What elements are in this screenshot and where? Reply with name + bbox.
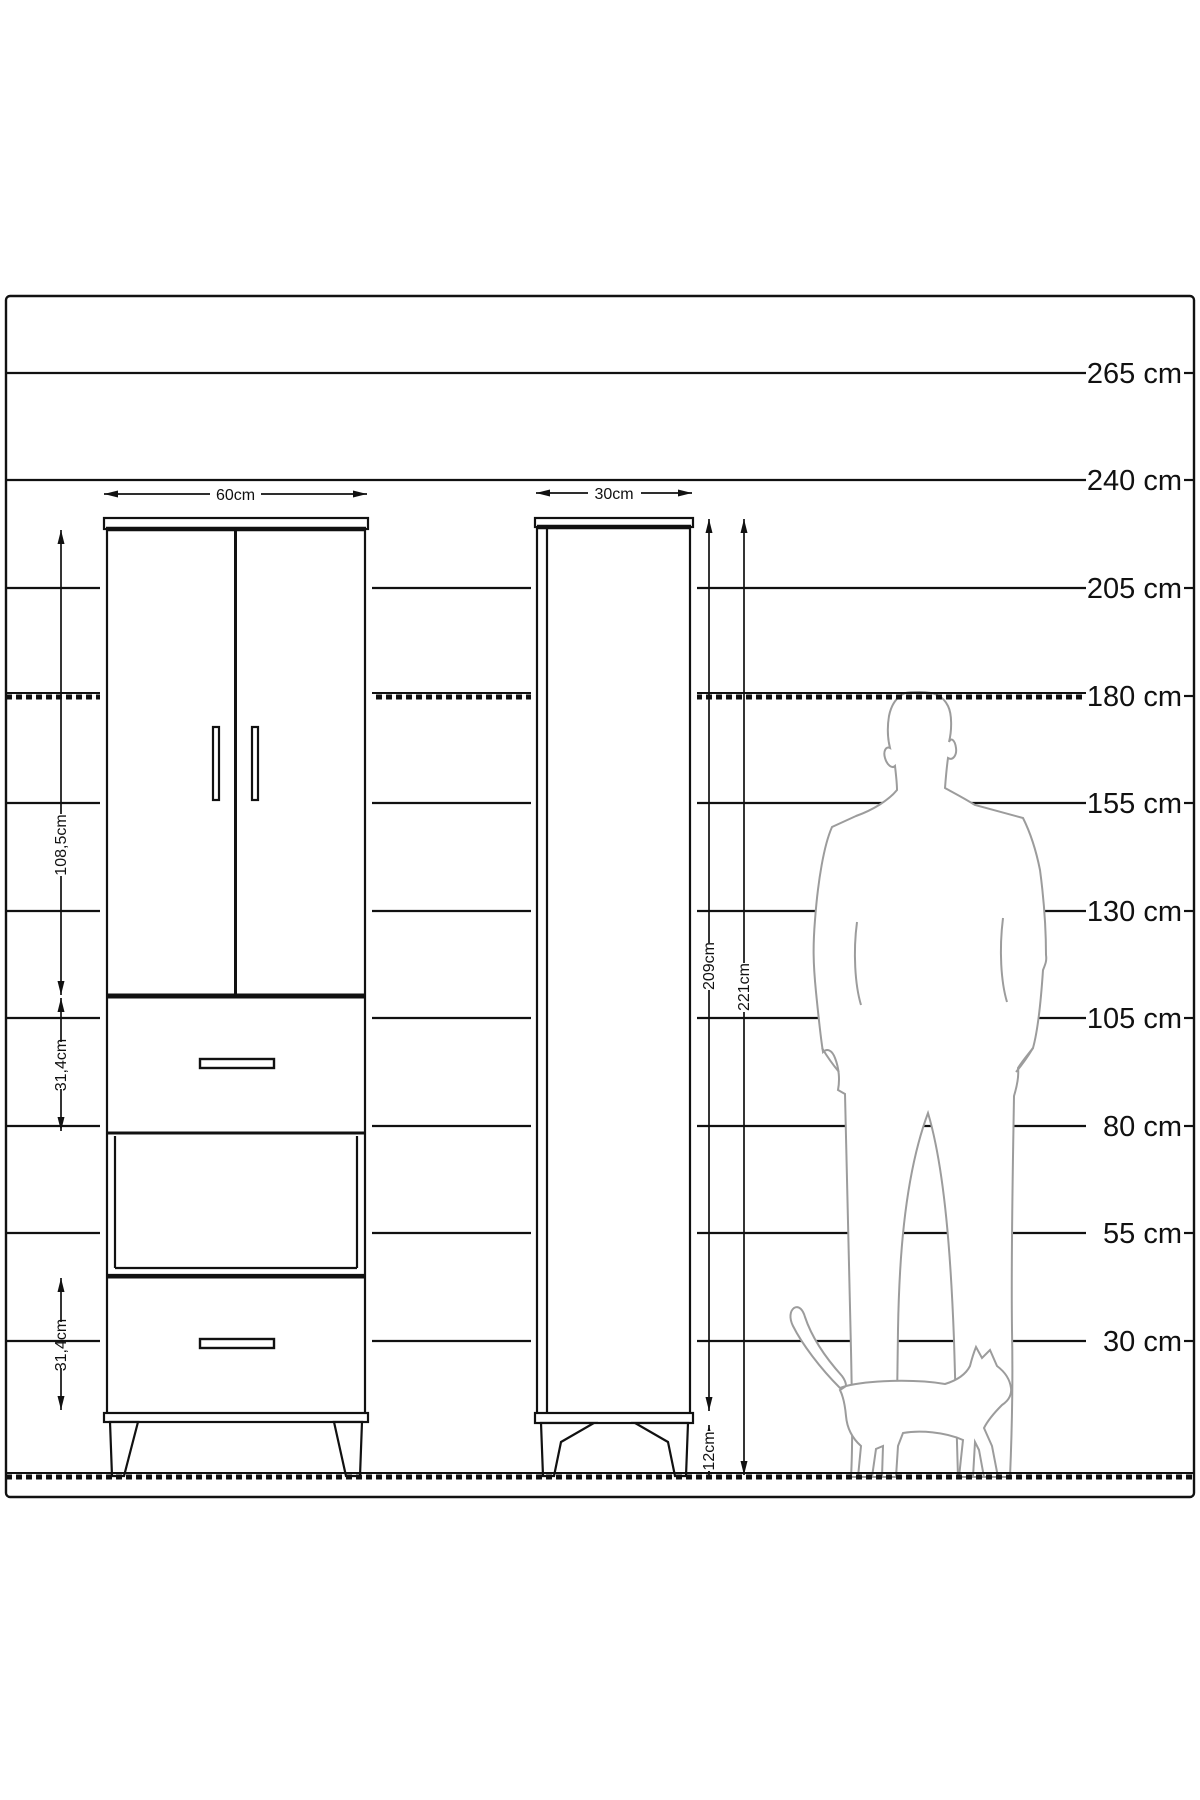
ruler-label-155: 155 cm — [1087, 788, 1182, 820]
dim-total-height-label: 221cm — [736, 963, 753, 1011]
right-cabinet — [531, 512, 697, 1476]
right-cabinet-bottom-board — [535, 1413, 693, 1423]
dim-right-width-label: 30cm — [594, 486, 633, 503]
dim-leg-height-label: 12cm — [701, 1431, 718, 1470]
ruler-label-55: 55 cm — [1103, 1218, 1182, 1250]
ruler-label-265: 265 cm — [1087, 358, 1182, 390]
dimension-diagram: 265 cm 240 cm 205 cm 180 cm 155 cm 130 c… — [0, 0, 1200, 1800]
ruler-label-205: 205 cm — [1087, 573, 1182, 605]
dim-bottom-drawer-label: 31,4cm — [53, 1319, 70, 1371]
diagram-canvas: 265 cm 240 cm 205 cm 180 cm 155 cm 130 c… — [0, 0, 1200, 1800]
dim-middle-drawer-label: 31,4cm — [53, 1039, 70, 1091]
right-cabinet-mask — [531, 512, 697, 1427]
ruler-label-80: 80 cm — [1103, 1111, 1182, 1143]
dim-carcass-height-label: 209cm — [701, 942, 718, 990]
left-cabinet-bottom-board — [104, 1413, 368, 1422]
ruler-label-240: 240 cm — [1087, 465, 1182, 497]
dim-left-width-label: 60cm — [216, 487, 255, 504]
dim-leg-height: 12cm — [697, 1425, 721, 1475]
ruler-label-180: 180 cm — [1087, 681, 1182, 713]
ruler-label-30: 30 cm — [1103, 1326, 1182, 1358]
dim-door-section-label: 108,5cm — [53, 814, 70, 875]
ruler-label-105: 105 cm — [1087, 1003, 1182, 1035]
left-cabinet — [100, 512, 372, 1476]
ruler-label-130: 130 cm — [1087, 896, 1182, 928]
